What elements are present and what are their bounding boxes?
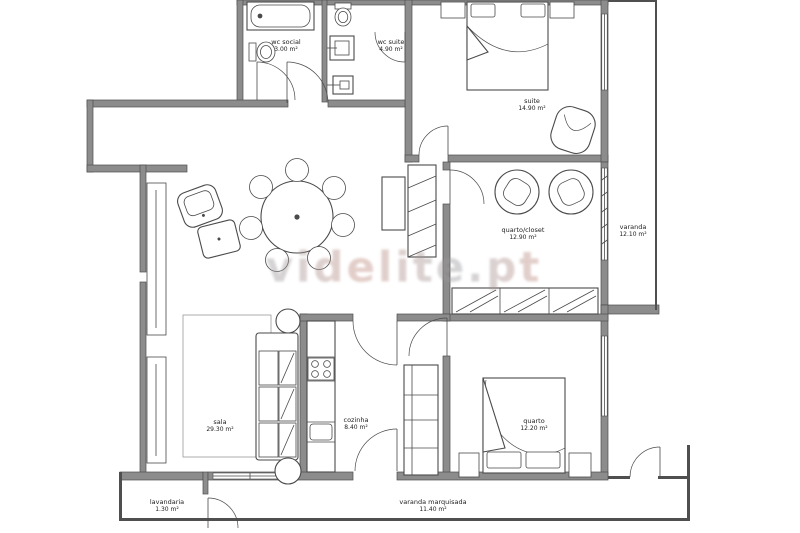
- door-quarto: [409, 318, 447, 356]
- room-area: 8.40 m²: [344, 424, 369, 432]
- wall-bath-right: [405, 0, 412, 162]
- window-closetroom-varanda: [602, 168, 607, 260]
- room-area: 29.30 m²: [206, 426, 233, 434]
- room-area: 3.00 m²: [271, 46, 301, 54]
- room-name: quarto: [520, 417, 547, 425]
- room-label-wc-social: wc social 3.00 m²: [271, 38, 301, 54]
- wall-quarto-top: [443, 314, 608, 321]
- kitchen-tall-units: [404, 365, 438, 475]
- bidet-wc-suite: [327, 76, 353, 94]
- stove: [308, 358, 334, 380]
- wall-marquise-bottom: [119, 518, 690, 521]
- door-cozinha-bottom: [355, 429, 397, 471]
- door-quarto-closet: [450, 170, 484, 204]
- window-suite-varanda: [602, 14, 607, 90]
- side-table-living: [197, 219, 242, 259]
- wall-lavandaria-divider: [203, 472, 208, 494]
- door-suite: [419, 126, 448, 155]
- wall-living-top-right: [328, 100, 405, 107]
- kitchen-sink: [310, 424, 332, 440]
- wall-marquise-right: [687, 445, 690, 521]
- room-name: wc suite: [378, 38, 405, 46]
- room-label-quarto: quarto 12.20 m²: [520, 417, 547, 433]
- door-marquise: [630, 447, 660, 477]
- wall-left-main-lower: [140, 282, 146, 478]
- room-label-quarto-closet: quarto/closet 12.90 m²: [502, 226, 545, 242]
- room-label-cozinha: cozinha 8.40 m²: [344, 416, 369, 432]
- room-label-lavandaria: lavandaria 1.30 m²: [150, 498, 184, 514]
- room-area: 14.90 m²: [518, 105, 545, 113]
- room-name: quarto/closet: [502, 226, 545, 234]
- wall-varanda-bottom: [601, 305, 659, 314]
- room-area: 11.40 m²: [399, 506, 466, 514]
- wall-kitchen-top-a: [300, 314, 353, 321]
- armchair-closetroom-1: [495, 170, 539, 214]
- wall-marquise-top-a: [608, 476, 630, 479]
- wall-varanda-top: [608, 0, 656, 2]
- room-name: wc social: [271, 38, 301, 46]
- room-area: 4.90 m²: [378, 46, 405, 54]
- room-label-wc-suite: wc suite 4.90 m²: [378, 38, 405, 54]
- sink-wc-suite: [327, 36, 354, 60]
- closet-sala-wall: [147, 183, 166, 463]
- door-wc-social: [257, 62, 295, 100]
- window-sala-marquise: [213, 473, 283, 479]
- armchair-closetroom-2: [549, 170, 593, 214]
- wall-left-upper: [87, 100, 93, 172]
- wall-corridor-a: [443, 162, 450, 170]
- sofa-sala: [256, 309, 301, 484]
- door-cozinha-top: [353, 321, 397, 365]
- room-area: 12.10 m²: [619, 231, 646, 239]
- kitchen-counter: [307, 321, 335, 472]
- wall-left-notch: [87, 165, 187, 172]
- wall-suite-bottom-a: [405, 155, 419, 162]
- room-label-varanda: varanda 12.10 m²: [619, 223, 646, 239]
- wall-left-main-upper: [140, 165, 146, 272]
- room-name: cozinha: [344, 416, 369, 424]
- room-label-varanda-marquisada: varanda marquisada 11.40 m²: [399, 498, 466, 514]
- wall-bath-left: [237, 0, 243, 102]
- room-name: sala: [206, 418, 233, 426]
- bed-suite: [441, 2, 574, 90]
- room-name: suite: [518, 97, 545, 105]
- room-label-suite: suite 14.90 m²: [518, 97, 545, 113]
- sideboard-hall: [382, 177, 405, 230]
- room-area: 1.30 m²: [150, 506, 184, 514]
- wall-living-top-left: [87, 100, 288, 107]
- room-area: 12.90 m²: [502, 234, 545, 242]
- door-lavandaria: [208, 498, 238, 528]
- wall-suite-bottom-b: [448, 155, 608, 162]
- room-name: lavandaria: [150, 498, 184, 506]
- site-watermark: videlite.pt: [266, 243, 543, 292]
- wall-kitchen-left: [300, 314, 307, 478]
- room-label-sala: sala 29.30 m²: [206, 418, 233, 434]
- wall-corridor-c: [443, 356, 450, 478]
- room-name: varanda: [619, 223, 646, 231]
- wardrobe-closetroom: [452, 288, 598, 314]
- wall-bottom-a: [120, 472, 203, 480]
- room-area: 12.20 m²: [520, 425, 547, 433]
- wall-varanda-outer: [655, 0, 657, 310]
- wall-kitchen-top-b: [397, 314, 450, 321]
- wall-marquise-top-b: [658, 476, 689, 479]
- window-quarto: [602, 336, 607, 416]
- armchair-suite: [547, 103, 599, 157]
- bathtub: [247, 2, 314, 30]
- wall-marquise-left: [119, 472, 122, 521]
- floor-plan-page: wc social 3.00 m² wc suite 4.90 m² suite…: [0, 0, 800, 533]
- toilet-wc-suite: [335, 3, 351, 26]
- room-name: varanda marquisada: [399, 498, 466, 506]
